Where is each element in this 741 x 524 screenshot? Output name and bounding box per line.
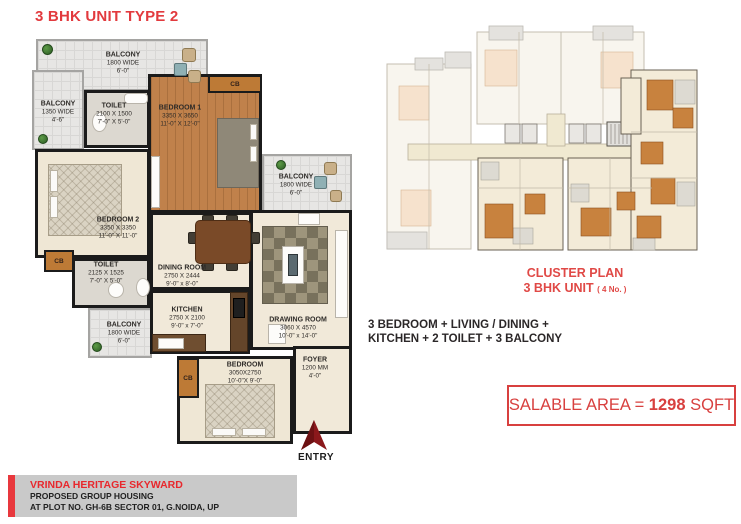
footer: VRINDA HERITAGE SKYWARD PROPOSED GROUP H…: [8, 475, 297, 517]
balcony-table: [174, 63, 187, 76]
stove: [233, 298, 245, 318]
armchair: [298, 213, 320, 225]
brochure-page: 3 BHK UNIT TYPE 2 CB CB CB: [0, 0, 741, 524]
room-label-toilet-2: TOILET2125 X 15257'-0" X 5'-0": [88, 260, 124, 285]
pillow: [212, 428, 236, 436]
salable-suffix: SQFT: [686, 396, 735, 415]
floor-plan: CB CB CB: [30, 36, 370, 468]
room-label-balcony-right: BALCONY1800 WIDE6'-0": [279, 172, 314, 197]
room-label-foyer: FOYER1200 MM4'-0": [302, 355, 328, 380]
room-label-bedroom-1: BEDROOM 13350 X 365011'-0" X 12'-0": [159, 103, 201, 128]
room-label-balcony-top: BALCONY1800 WIDE6'-0": [106, 50, 141, 75]
room-label-bedroom-2: BEDROOM 23350 X 335011'-0" X 11'-0": [97, 215, 139, 240]
cluster-plan-graphic: [385, 22, 705, 262]
balcony-chair: [188, 70, 201, 83]
sofa-right: [335, 230, 348, 318]
pillow: [242, 428, 266, 436]
tv-screen: [288, 254, 298, 276]
entry-label: ENTRY: [298, 452, 334, 463]
balcony-chair: [330, 190, 342, 202]
cupboard-bedroom-1: CB: [208, 75, 262, 93]
salable-prefix: SALABLE AREA =: [509, 396, 649, 415]
dining-table: [195, 220, 251, 264]
balcony-chair: [324, 162, 337, 175]
salable-value: 1298: [649, 396, 686, 415]
room-label-balcony-bottom: BALCONY1800 WIDE6'-0": [107, 320, 142, 345]
entry-arrow-icon: [301, 420, 327, 450]
room-label-toilet-1: TOILET2100 X 15007'-0" X 5'-0": [96, 101, 132, 126]
plant: [92, 342, 102, 352]
plant: [38, 134, 48, 144]
project-name: VRINDA HERITAGE SKYWARD: [30, 479, 219, 491]
wardrobe-bedroom-1: [151, 156, 160, 208]
plant: [276, 160, 286, 170]
project-address: AT PLOT NO. GH-6B SECTOR 01, G.NOIDA, UP: [30, 502, 219, 513]
room-label-kitchen: KITCHEN2750 X 21009'-0" x 7'-0": [169, 305, 205, 330]
footer-accent-bar: [8, 475, 15, 517]
cluster-unit-count: ( 4 No. ): [597, 285, 626, 294]
room-label-drawing: DRAWING ROOM3060 X 457010'-0" x 14'-0": [269, 315, 327, 340]
room-label-balcony-left: BALCONY1350 WIDE4'-6": [41, 99, 76, 124]
kitchen-sink: [158, 338, 184, 349]
plant: [42, 44, 53, 55]
room-label-bedroom-3: BEDROOM3050X275010'-0"X 9'-0": [227, 360, 264, 385]
cupboard-bedroom-3: CB: [177, 358, 199, 398]
pillow: [50, 196, 58, 218]
cluster-title-line1: CLUSTER PLAN: [495, 266, 655, 281]
configuration-summary: 3 BEDROOM + LIVING / DINING + KITCHEN + …: [368, 319, 562, 346]
page-title: 3 BHK UNIT TYPE 2: [35, 8, 178, 25]
cupboard-bedroom-2: CB: [44, 250, 74, 272]
pillow: [50, 170, 58, 192]
balcony-table: [314, 176, 327, 189]
room-label-dining: DINING ROOM2750 X 24449'-0" x 8'-0": [158, 263, 206, 288]
pillow: [250, 146, 257, 162]
dining-chair: [251, 232, 260, 244]
cluster-title: CLUSTER PLAN 3 BHK UNIT ( 4 No. ): [495, 266, 655, 297]
salable-area-box: SALABLE AREA = 1298 SQFT: [507, 385, 736, 426]
footer-text: VRINDA HERITAGE SKYWARD PROPOSED GROUP H…: [30, 479, 219, 513]
project-type: PROPOSED GROUP HOUSING: [30, 491, 219, 502]
wc: [136, 278, 150, 297]
balcony-chair: [182, 48, 196, 62]
cluster-title-line2: 3 BHK UNIT ( 4 No. ): [495, 281, 655, 297]
pillow: [250, 124, 257, 140]
